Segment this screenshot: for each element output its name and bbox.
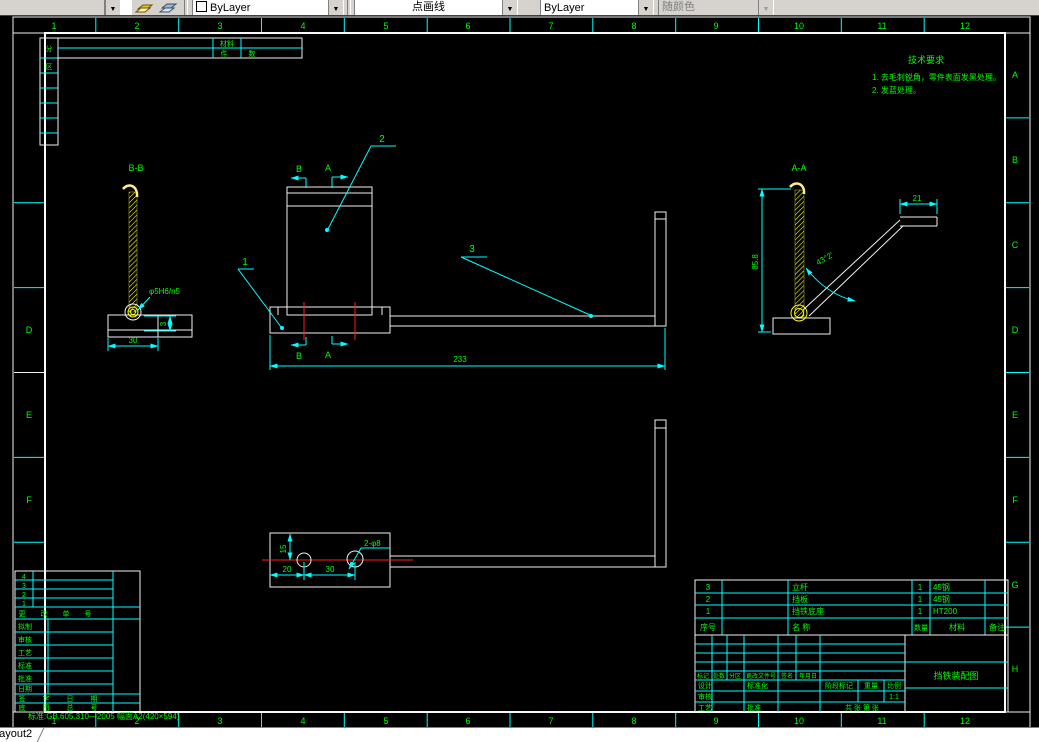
bottom-left-signature-table: 4 3 2 1 更 改 单 号 拟制 审核 工艺 标准 批准 日期 签 字: [15, 571, 140, 712]
svg-text:85.8: 85.8: [751, 254, 760, 270]
color-combo-value: ByLayer: [207, 2, 328, 15]
length-dimension-233: 233: [270, 328, 665, 370]
svg-text:11: 11: [877, 716, 886, 726]
bom-row: 3 立杆 1 45钢: [706, 582, 950, 592]
layout-tabs-bar: Layout2: [0, 727, 1039, 742]
svg-text:号: 号: [85, 610, 92, 618]
layout-tab[interactable]: Layout2: [0, 728, 32, 740]
balloon-3: 3: [461, 244, 593, 318]
svg-text:签名: 签名: [781, 672, 793, 680]
svg-text:E: E: [26, 410, 32, 420]
dimension-15: 15: [279, 534, 290, 560]
svg-text:G: G: [1011, 580, 1018, 590]
section-arrow-a-bottom: A: [325, 336, 348, 360]
svg-text:挡板: 挡板: [792, 594, 808, 604]
zone-ticks-right: [1006, 118, 1029, 627]
drawing-title: 挡铁装配图: [933, 670, 978, 681]
svg-text:1: 1: [918, 607, 923, 616]
svg-text:更改文件号: 更改文件号: [746, 672, 776, 680]
main-front-view: 1 2 3 B: [238, 134, 666, 370]
svg-text:审核: 审核: [698, 692, 712, 701]
svg-text:图: 图: [43, 704, 50, 712]
dimension-20-30: 20 30: [270, 562, 355, 580]
svg-text:C: C: [1012, 240, 1019, 250]
stage-weight-scale: 阶段标记 重量 比例 1:1 共 张 第 张: [825, 681, 901, 712]
svg-text:2: 2: [379, 134, 385, 145]
section-view-bb: B-B φ5H6/n5 30 3: [108, 163, 192, 351]
svg-text:序号: 序号: [700, 622, 716, 632]
svg-text:1: 1: [918, 583, 923, 592]
svg-text:工艺: 工艺: [698, 704, 712, 712]
svg-text:2: 2: [22, 592, 26, 599]
svg-text:2-φ8: 2-φ8: [364, 539, 381, 548]
layers-icon: [158, 0, 180, 14]
balloon-1: 1: [238, 257, 284, 330]
top-strip-cell: 数: [249, 49, 256, 58]
section-view-aa: A-A 21 85.8: [751, 163, 937, 334]
svg-text:审核: 审核: [18, 635, 32, 644]
svg-text:30: 30: [326, 565, 335, 574]
svg-text:E: E: [1012, 410, 1018, 420]
top-strip-cell: 材料: [220, 39, 234, 48]
sheet-border: 12 34 56 78 910 1112 12 34 56 78 910 111…: [13, 17, 1030, 728]
angle-dimension: 43°2′: [806, 250, 855, 301]
title-block: 标记 处数 分区 更改文件号 签名 年月日 设计 审核 工艺 标准化 批准 阶段…: [695, 635, 1008, 712]
svg-text:9: 9: [713, 21, 718, 31]
linetype-combo-value: 点画线: [355, 0, 502, 15]
svg-text:数量: 数量: [914, 623, 928, 632]
svg-text:8: 8: [631, 716, 636, 726]
height-dimension: 3: [159, 321, 168, 326]
svg-text:1: 1: [242, 257, 248, 268]
svg-text:1: 1: [706, 607, 711, 616]
svg-text:HT200: HT200: [933, 607, 958, 616]
svg-text:2: 2: [706, 595, 711, 604]
bom-row: 1 挡铁底座 1 HT200: [706, 606, 958, 616]
svg-text:45钢: 45钢: [933, 582, 950, 592]
svg-text:43°2′: 43°2′: [815, 250, 836, 267]
svg-text:总: 总: [67, 703, 74, 712]
revision-header-row: 标记 处数 分区 更改文件号 签名 年月日: [697, 672, 817, 680]
layer-combo-partial[interactable]: ▼: [104, 0, 132, 16]
svg-text:5: 5: [383, 716, 388, 726]
svg-text:7: 7: [548, 21, 553, 31]
left-strip-char: 分: [46, 44, 53, 53]
plotstyle-combo-value: 随颜色: [659, 0, 758, 15]
cad-application-window: ▼ ByLayer ▼ 点画线 ▼ ByLayer ▼: [0, 0, 1039, 742]
svg-text:标准: 标准: [18, 661, 32, 670]
view-label: A-A: [791, 163, 806, 173]
svg-text:10: 10: [794, 21, 804, 31]
svg-text:底: 底: [19, 703, 26, 712]
tech-req-item: 1. 去毛刺锐角，零件表面发黑处理。: [872, 72, 1001, 82]
hole-dimension: φ5H6/n5: [149, 287, 181, 296]
bom-header-row: 序号 名 称 数量 材料 备注: [700, 622, 1005, 632]
svg-text:工艺: 工艺: [18, 649, 32, 657]
width-dimension: 30: [129, 336, 138, 345]
svg-text:处数: 处数: [713, 672, 725, 680]
toolbar-separator: [347, 0, 351, 16]
svg-text:重量: 重量: [864, 682, 878, 690]
svg-text:更: 更: [19, 610, 26, 618]
svg-text:共 张 第 张: 共 张 第 张: [845, 703, 879, 712]
revision-number-cells: 4 3 2 1: [22, 574, 26, 608]
svg-text:材料: 材料: [949, 622, 965, 632]
svg-text:批准: 批准: [747, 703, 761, 712]
svg-text:F: F: [26, 495, 32, 505]
section-arrow-a-top: A: [325, 163, 348, 188]
svg-text:15: 15: [279, 544, 288, 553]
top-left-margin-table: 分 区 材料 件 数: [40, 38, 302, 145]
sheet-standard-note: 标准:GB.605.310—2005 幅面A2(420×594): [28, 711, 180, 721]
svg-text:阶段标记: 阶段标记: [825, 681, 853, 690]
svg-text:B: B: [296, 164, 302, 174]
svg-text:F: F: [1012, 495, 1018, 505]
svg-text:比例: 比例: [887, 681, 901, 690]
layout-tab-edge: [36, 727, 45, 742]
plotstyle-control-combo: 随颜色 ▼: [658, 0, 774, 16]
svg-text:挡铁底座: 挡铁底座: [792, 606, 824, 616]
arm-top-view: 15 20 30 2-φ8: [262, 420, 666, 587]
svg-text:7: 7: [548, 716, 553, 726]
svg-text:年月日: 年月日: [799, 672, 817, 680]
svg-text:12: 12: [960, 21, 970, 31]
signature-labels: 设计 审核 工艺 标准化 批准: [698, 681, 768, 712]
lineweight-control-combo[interactable]: ByLayer ▼: [540, 0, 654, 16]
chevron-down-icon: ▼: [758, 0, 773, 15]
section-arrow-b-top: B: [291, 164, 306, 188]
svg-text:9: 9: [713, 716, 718, 726]
svg-text:A: A: [325, 350, 331, 360]
svg-text:D: D: [26, 325, 33, 335]
svg-text:10: 10: [794, 716, 804, 726]
object-properties-toolbar: ▼ ByLayer ▼ 点画线 ▼ ByLayer ▼: [0, 0, 1039, 16]
tech-req-title: 技术要求: [908, 54, 944, 65]
svg-text:号: 号: [91, 704, 98, 712]
zone-numbers-bottom: 12 34 56 78 910 1112: [51, 716, 970, 726]
svg-text:H: H: [1012, 664, 1019, 674]
section-arrow-b-bottom: B: [291, 337, 306, 361]
svg-text:4: 4: [22, 574, 26, 581]
svg-text:45钢: 45钢: [933, 594, 950, 604]
svg-text:1: 1: [51, 21, 56, 31]
balloon-2: 2: [325, 134, 396, 232]
view-label: B-B: [128, 163, 143, 173]
scale-value: 1:1: [889, 694, 899, 701]
chevron-down-icon[interactable]: ▼: [328, 0, 343, 15]
height-dimension-858: 85.8: [751, 189, 791, 332]
svg-text:签: 签: [19, 694, 26, 703]
svg-text:3: 3: [217, 716, 222, 726]
svg-text:3: 3: [706, 583, 711, 592]
left-strip-char: 区: [46, 63, 53, 71]
toolbar-separator: [184, 0, 188, 16]
top-dimension-21: 21: [900, 194, 937, 214]
make-layer-current-button[interactable]: [134, 0, 156, 14]
parts-list-table: 3 立杆 1 45钢 2 挡板 1 45钢 1 挡铁底座 1 HT200 序号 …: [695, 580, 1008, 635]
svg-text:分区: 分区: [729, 672, 741, 680]
svg-text:3: 3: [217, 21, 222, 31]
change-header-chars: 更 改 单 号: [19, 609, 92, 618]
chevron-down-icon[interactable]: ▼: [638, 0, 653, 15]
svg-text:6: 6: [465, 21, 470, 31]
lineweight-combo-value: ByLayer: [541, 2, 638, 15]
bom-row: 2 挡板 1 45钢: [706, 594, 950, 604]
color-control-combo[interactable]: ByLayer ▼: [192, 0, 344, 16]
top-strip-cell: 件: [221, 49, 228, 58]
linetype-control-combo[interactable]: 点画线 ▼: [354, 0, 518, 16]
svg-text:4: 4: [300, 21, 305, 31]
svg-text:单: 单: [63, 609, 70, 618]
tech-req-item: 2. 发蓝处理。: [872, 85, 921, 95]
svg-text:B: B: [296, 351, 302, 361]
svg-text:备注: 备注: [989, 622, 1005, 632]
chevron-down-icon[interactable]: ▼: [105, 0, 120, 15]
svg-text:立杆: 立杆: [792, 582, 808, 592]
svg-text:日期: 日期: [18, 685, 32, 693]
svg-text:3: 3: [469, 244, 475, 255]
svg-text:1: 1: [22, 601, 26, 608]
svg-text:21: 21: [913, 194, 922, 203]
svg-text:字: 字: [43, 694, 50, 703]
zone-letters-left: D E F: [26, 325, 33, 505]
technical-requirements-note: 技术要求 1. 去毛刺锐角，零件表面发黑处理。 2. 发蓝处理。: [872, 54, 1001, 95]
svg-text:A: A: [1012, 70, 1018, 80]
svg-text:233: 233: [453, 355, 467, 364]
svg-text:拟制: 拟制: [18, 622, 32, 631]
svg-text:A: A: [325, 163, 331, 173]
chevron-down-icon[interactable]: ▼: [502, 0, 517, 15]
svg-text:20: 20: [283, 565, 292, 574]
svg-text:4: 4: [300, 716, 305, 726]
svg-text:日: 日: [67, 695, 74, 703]
model-space-canvas[interactable]: 12 34 56 78 910 1112 12 34 56 78 910 111…: [0, 0, 1039, 742]
bylayer-color-swatch-icon: [196, 1, 207, 12]
svg-text:2: 2: [134, 21, 139, 31]
svg-text:8: 8: [631, 21, 636, 31]
svg-text:改: 改: [41, 609, 48, 618]
svg-text:3: 3: [22, 583, 26, 590]
svg-text:D: D: [1012, 325, 1019, 335]
svg-text:标准化: 标准化: [747, 681, 768, 690]
svg-text:期: 期: [91, 695, 98, 703]
svg-text:设计: 设计: [698, 681, 712, 690]
zone-numbers-top: 12 34 56 78 910 1112: [51, 21, 970, 31]
svg-text:5: 5: [383, 21, 388, 31]
svg-text:批准: 批准: [18, 674, 32, 683]
svg-text:1: 1: [918, 595, 923, 604]
layer-yellow-icon: [134, 0, 156, 14]
svg-text:名 称: 名 称: [792, 622, 810, 632]
svg-text:11: 11: [877, 21, 886, 31]
svg-text:6: 6: [465, 716, 470, 726]
svg-text:B: B: [1012, 155, 1018, 165]
layer-previous-button[interactable]: [158, 0, 180, 14]
svg-text:标记: 标记: [697, 672, 709, 680]
svg-text:12: 12: [960, 716, 970, 726]
